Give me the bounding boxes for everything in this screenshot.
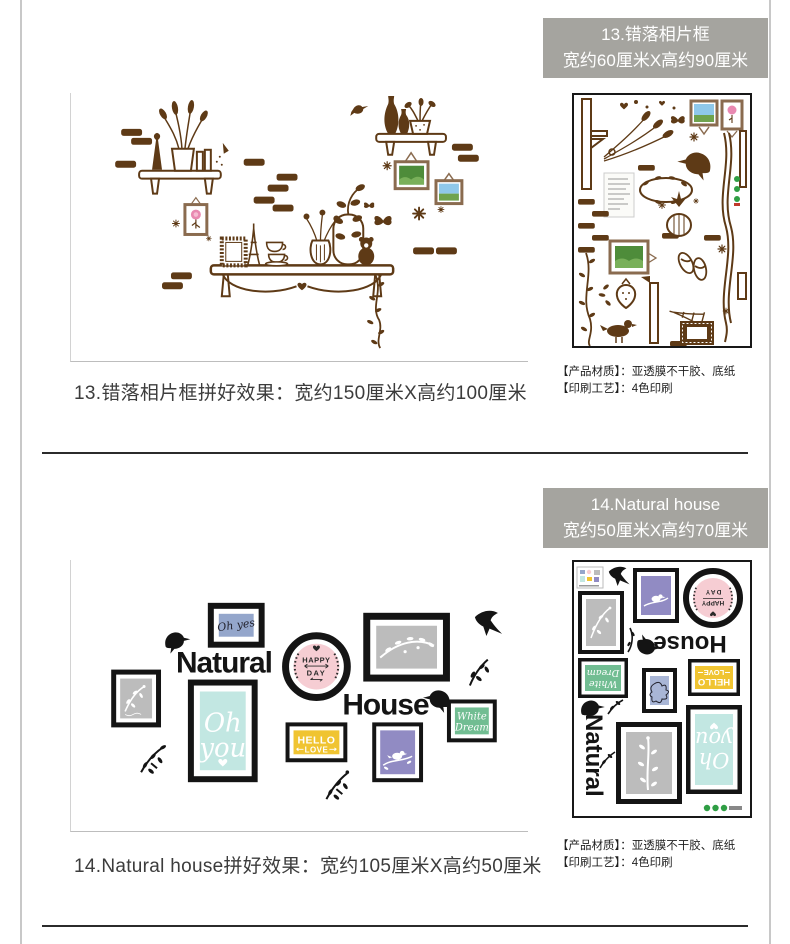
butterfly-icon: [364, 202, 374, 207]
svg-text:White: White: [588, 678, 617, 689]
teddy-bear: [358, 237, 374, 265]
size-header-14: 14.Natural house 宽约50厘米X高约70厘米: [543, 488, 768, 548]
size-header-13: 13.错落相片框 宽约60厘米X高约90厘米: [543, 18, 768, 78]
svg-text:LOVE: LOVE: [704, 668, 724, 677]
twig-decal: [627, 628, 635, 652]
ornate-frame: [222, 238, 246, 265]
product-description-page: 13.错落相片框 宽约60厘米X高约90厘米: [0, 0, 790, 944]
svg-text:Dream: Dream: [454, 722, 489, 733]
certification-dots: [734, 176, 740, 206]
frame-gray-leaves-small: [111, 670, 161, 728]
header-13-size: 宽约60厘米X高约90厘米: [543, 48, 768, 74]
frame-white-dream: White Dream: [447, 699, 497, 742]
sheet14-frame-gray-large: [616, 722, 682, 804]
sheet14-natural-text: Natural: [580, 714, 607, 797]
svg-text:you: you: [695, 727, 734, 751]
twig-decal: [326, 770, 349, 800]
bird-icon: [350, 105, 368, 116]
header-13-title: 13.错落相片框: [543, 22, 768, 48]
left-shelf-items: [152, 100, 229, 171]
svg-text:Dream: Dream: [587, 667, 620, 678]
materials-14: 【产品材质】：亚透膜不干胶、底纸 【印刷工艺】：4色印刷: [557, 838, 777, 871]
sheet-image-14: HAPPY DAY House: [572, 560, 752, 818]
frame-gray-leaves-large: [363, 613, 450, 682]
section-divider: [42, 452, 748, 454]
eiffel-tower: [246, 224, 262, 266]
sheet13-lavender: [604, 109, 675, 161]
svg-text:LOVE: LOVE: [305, 745, 329, 754]
decal-artwork-14: Oh yes Natural HAPPY DAY: [71, 560, 528, 831]
materials-13-line2: 【印刷工艺】：4色印刷: [557, 381, 777, 398]
svg-text:HAPPY: HAPPY: [701, 599, 724, 606]
svg-text:you: you: [198, 733, 246, 763]
sheet13-standing-bird: [600, 320, 637, 343]
materials-13: 【产品材质】：亚透膜不干胶、底纸 【印刷工艺】：4色印刷: [557, 364, 777, 397]
sticker-sheet-13: [574, 95, 750, 346]
photo-frame-forest: [383, 153, 428, 189]
materials-14-line1: 【产品材质】：亚透膜不干胶、底纸: [557, 838, 777, 855]
frame-oh-you: Oh you: [188, 680, 258, 783]
sheet13-top-bits: [620, 100, 676, 110]
sheet14-frame-gray-small: [578, 591, 624, 654]
natural-text: Natural: [176, 647, 272, 680]
header-14-size: 宽约50厘米X高约70厘米: [543, 518, 768, 544]
sheet14-frame-white-dream: White Dream: [578, 658, 628, 698]
sheet14-happy-day-badge: HAPPY DAY: [686, 571, 740, 625]
sheet14-house-text: House: [653, 630, 726, 657]
star-decal: [718, 245, 726, 253]
sheet13-slippers: [676, 250, 709, 281]
sheet13-bulb-flower: [659, 191, 699, 236]
butterfly-icon: [374, 216, 391, 225]
swallow-icon: [475, 611, 502, 636]
certification-dots: [704, 805, 742, 811]
sheet13-post: [641, 276, 658, 343]
main-shelf: [211, 265, 393, 296]
happy-day-badge: HAPPY DAY: [286, 636, 348, 698]
twig-decal: [141, 744, 167, 775]
right-shelf-items: [384, 96, 436, 134]
preview-image-14: Oh yes Natural HAPPY DAY: [70, 560, 528, 832]
left-shelf: [139, 171, 221, 194]
preview-image-13: [70, 93, 528, 362]
caption-14: 14.Natural house拼好效果：宽约105厘米X高约50厘米: [74, 851, 542, 878]
star-decal: [723, 308, 729, 314]
sheet14-frame-oh-you: Oh you: [686, 705, 742, 794]
sticker-sheet-14: HAPPY DAY House: [574, 562, 750, 816]
page-left-border: [20, 0, 22, 944]
materials-14-line2: 【印刷工艺】：4色印刷: [557, 855, 777, 872]
photo-frame-rose: [172, 198, 211, 241]
sheet13-vine: [578, 253, 596, 346]
svg-text:DAY: DAY: [307, 669, 327, 678]
swallow-icon: [609, 567, 630, 586]
sheet13-frame-landscape: [691, 101, 717, 134]
sheet13-shelf-parts: [582, 99, 607, 189]
sheet14-mini-label: [577, 567, 603, 588]
section-divider: [42, 925, 748, 927]
sheet14-frame-blue-ornate: [642, 668, 677, 713]
materials-13-line1: 【产品材质】：亚透膜不干胶、底纸: [557, 364, 777, 381]
sheet13-strawberry: [598, 279, 635, 308]
sheet14-frame-hello-love: HELLO LOVE: [688, 659, 740, 696]
star-decal: [690, 133, 698, 141]
sheet13-rail-bar: [740, 131, 746, 187]
sheet13-frame-forest: [610, 241, 656, 273]
twig-decal: [608, 700, 623, 714]
svg-text:White: White: [457, 711, 487, 722]
decal-artwork-13: [71, 93, 528, 361]
svg-text:HAPPY: HAPPY: [302, 656, 330, 665]
caption-13: 13.错落相片框拼好效果：宽约150厘米X高约100厘米: [74, 378, 527, 405]
sheet13-text-label: [604, 173, 634, 217]
teacups: [266, 242, 288, 265]
twig-decal: [470, 660, 490, 686]
page-right-border: [769, 0, 771, 944]
frame-hello-love: HELLO LOVE: [286, 722, 348, 762]
bird-icon: [677, 153, 710, 181]
butterfly-icon: [671, 116, 685, 123]
svg-text:DAY: DAY: [705, 588, 722, 595]
frame-bird-purple: [372, 722, 423, 782]
frame-oh-yes: Oh yes: [208, 603, 265, 648]
header-14-title: 14.Natural house: [543, 492, 768, 518]
house-text: House: [342, 688, 429, 721]
sheet-image-13: [572, 93, 752, 348]
sheet13-ornate-frame: [680, 321, 714, 345]
sheet13-rail-bar: [738, 273, 746, 299]
sheet14-frame-purple: [633, 568, 679, 623]
